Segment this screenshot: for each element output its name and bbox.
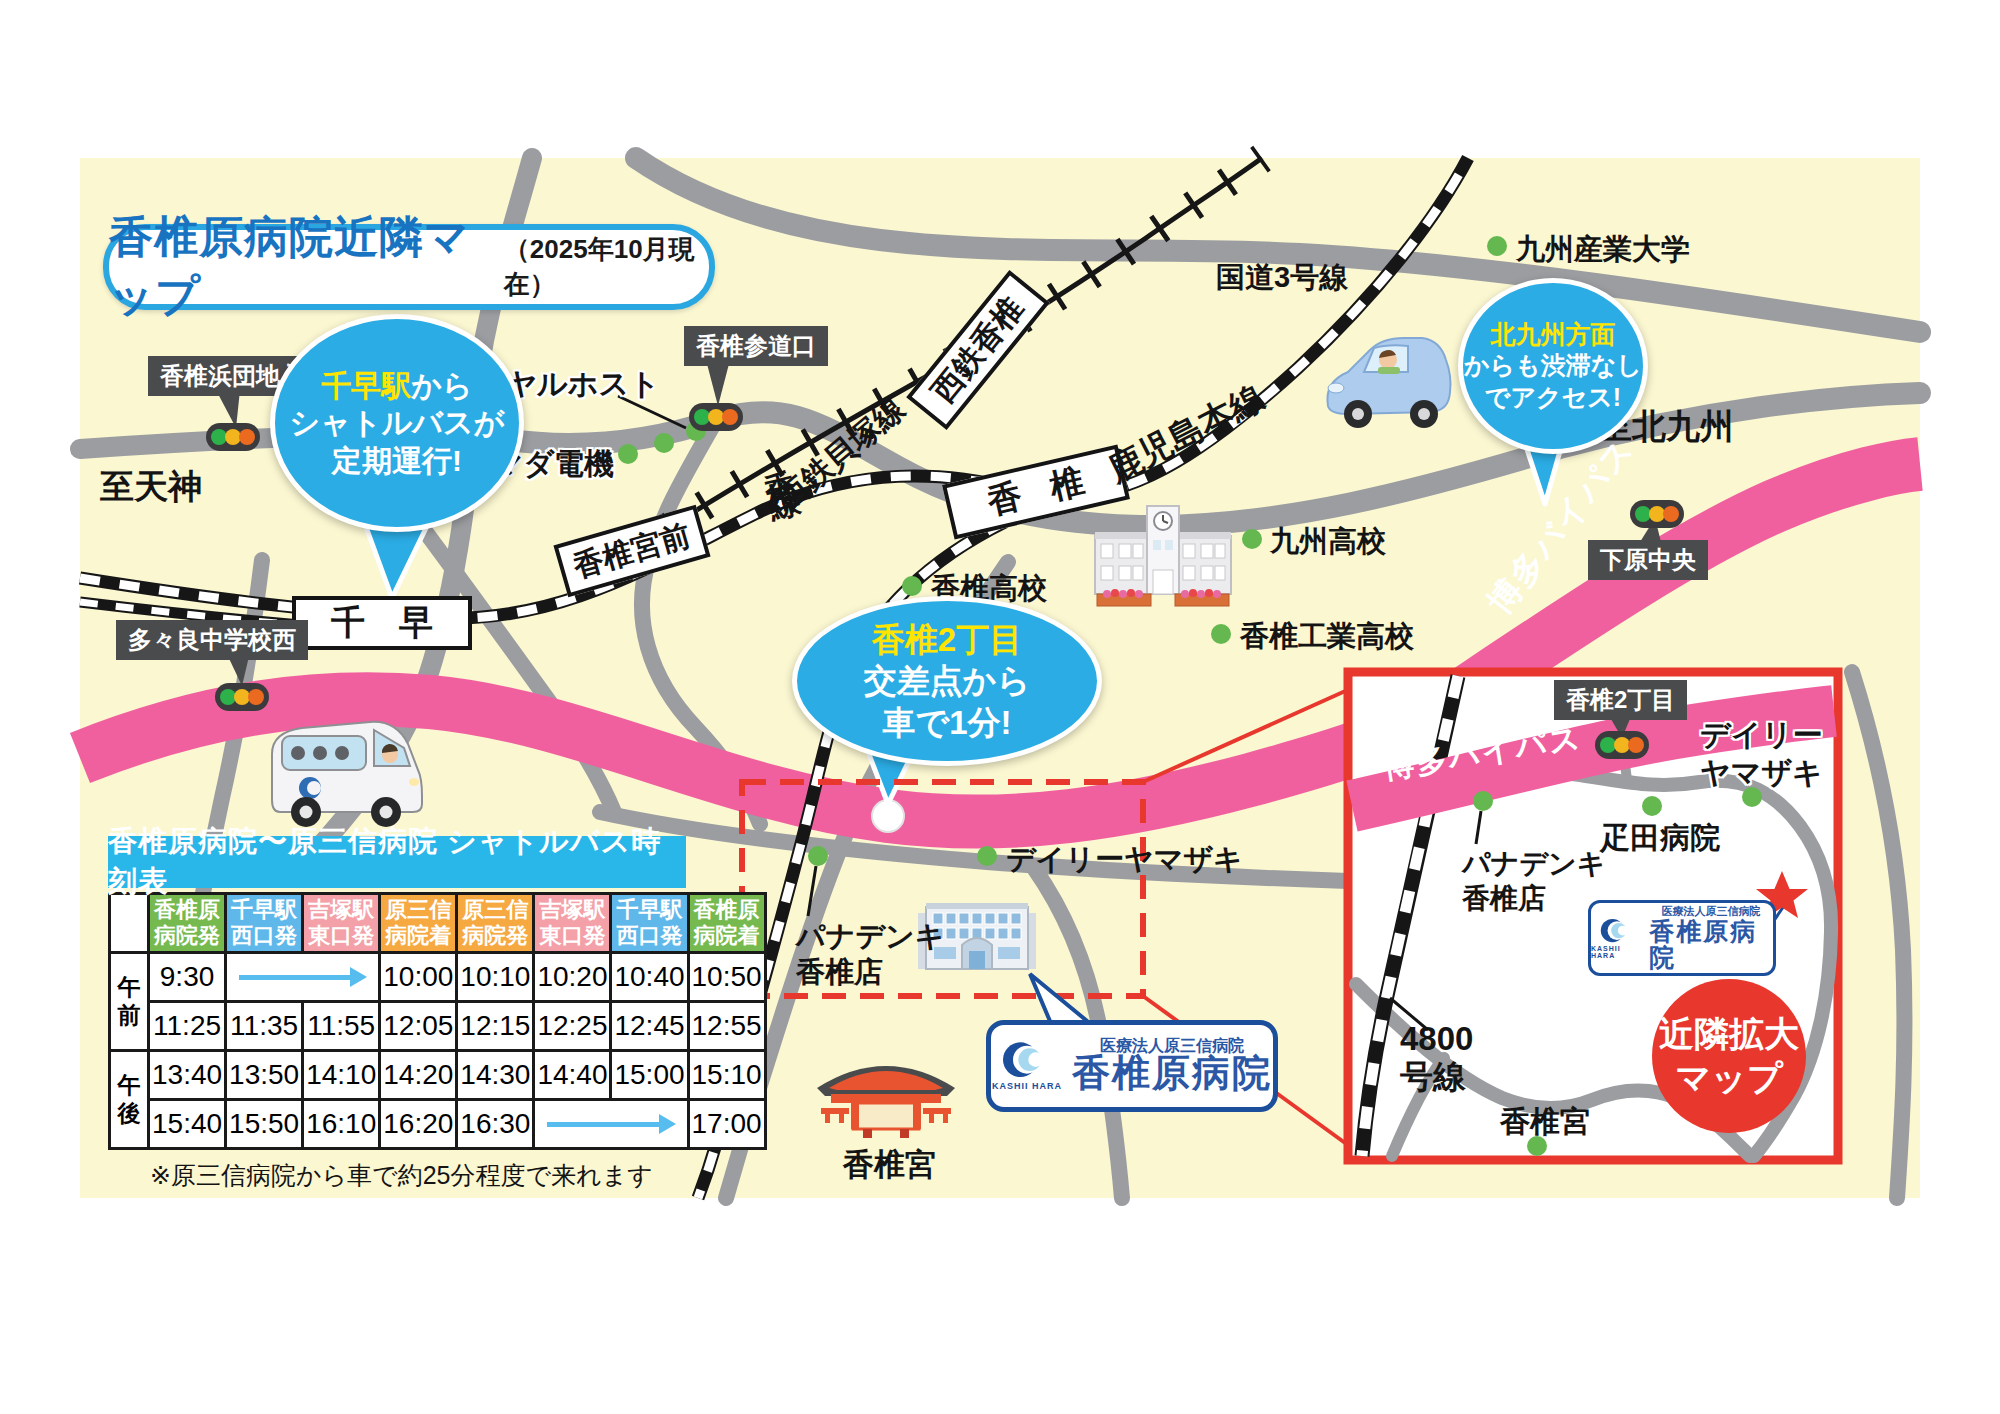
poi-hikita: 疋田病院 [1600,818,1720,859]
timetable-column-header: 千早駅 西口発 [611,894,688,953]
balloon-kitakyushu: 北九州方面 からも渋滞なし でアクセス! [1458,278,1648,454]
poi-sangyo-univ: 九州産業大学 [1516,230,1690,270]
shuttle-bus-icon [272,722,422,827]
timetable-time-cell: 15:10 [688,1051,765,1100]
timetable-time-cell: 12:15 [457,1002,534,1051]
hospital-logo: KASHII HARA [1591,918,1643,959]
sign-kashii2-inset: 香椎2丁目 [1554,680,1687,720]
timetable-table: 香椎原 病院発千早駅 西口発吉塚駅 東口発原三信 病院着原三信 病院発吉塚駅 東… [108,892,767,1150]
traffic-light-icon [689,403,743,431]
hospital-logo: KASHII HARA [992,1041,1062,1091]
balloon-chihaya-hl: 千早駅 [321,369,411,402]
map-poster: 香椎原病院近隣マップ （2025年10月現在） 香椎浜団地入口 香椎参道口 多々… [0,0,2000,1414]
timetable-column-header: 原三信 病院着 [380,894,457,953]
timetable-time-cell: 15:40 [149,1100,226,1149]
traffic-light-icon [215,683,269,711]
timetable-time-cell: 13:50 [226,1051,303,1100]
timetable-time-cell: 10:40 [611,953,688,1002]
timetable-period-label: 午 前 [110,953,149,1051]
timetable-through-arrow [226,953,380,1002]
label-kokudo3: 国道3号線 [1216,258,1348,298]
hospital-badge-inset: KASHII HARA 医療法人原三信病院 香椎原病院 [1588,900,1776,976]
hospital-name: 香椎原病院 [1072,1054,1272,1094]
map-title: 香椎原病院近隣マップ （2025年10月現在） [103,224,715,310]
shuttle-timetable: 香椎原病院〜原三信病院 シャトルバス時刻表 香椎原 病院発千早駅 西口発吉塚駅 … [108,836,767,1192]
timetable-column-header: 原三信 病院発 [457,894,534,953]
timetable-time-cell: 12:45 [611,1002,688,1051]
poi-panadenki-main: パナデンキ 香椎店 [796,918,944,991]
balloon-chihaya-l3: 定期運行! [332,442,462,480]
poi-kogyo-hs: 香椎工業高校 [1240,617,1414,657]
label-to-tenjin: 至天神 [100,464,202,510]
balloon-kitakyushu-hl: 北九州方面 [1491,319,1616,350]
timetable-time-cell: 14:10 [303,1051,380,1100]
timetable-column-header: 千早駅 西口発 [226,894,303,953]
traffic-light-icon [206,423,260,451]
timetable-time-cell: 15:00 [611,1051,688,1100]
timetable-time-cell: 12:05 [380,1002,457,1051]
sign-shimohara: 下原中央 [1588,540,1708,580]
balloon-kitakyushu-l2: からも渋滞なし [1464,350,1642,381]
hospital-org-name: 医療法人原三信病院 [1662,906,1761,918]
balloon-chihaya-shuttle: 千早駅から シャトルバスが 定期運行! [270,314,524,532]
hospital-logo-icon [1000,1041,1054,1081]
timetable-column-header: 香椎原 病院発 [149,894,226,953]
sign-sandoguchi: 香椎参道口 [684,326,828,366]
timetable-time-cell: 13:40 [149,1051,226,1100]
timetable-time-cell: 15:50 [226,1100,303,1149]
balloon-kashii2-l3: 車で1分! [882,702,1011,743]
timetable-time-cell: 9:30 [149,953,226,1002]
balloon-kashii2-hl: 香椎2丁目 [872,619,1022,660]
traffic-light-icon [1595,731,1649,759]
timetable-note: ※原三信病院から車で約25分程度で来れます [108,1159,767,1192]
inset-zoom-title: 近隣拡大 マップ [1652,979,1806,1133]
hospital-logo-text: KASHII HARA [1591,945,1643,959]
poi-kashiigu-main: 香椎宮 [843,1144,936,1186]
timetable-corner-cell [110,894,149,953]
timetable-time-cell: 14:40 [534,1051,611,1100]
balloon-kashii2-l2: 交差点から [864,660,1031,701]
timetable-period-label: 午 後 [110,1051,149,1149]
poi-kyushu-hs: 九州高校 [1270,522,1386,562]
timetable-time-cell: 16:20 [380,1100,457,1149]
hospital-name: 香椎原病院 [1649,918,1773,971]
timetable-time-cell: 14:30 [457,1051,534,1100]
map-title-text: 香椎原病院近隣マップ [109,208,492,326]
timetable-time-cell: 17:00 [688,1100,765,1149]
balloon-kitakyushu-l3: でアクセス! [1485,382,1621,413]
timetable-column-header: 香椎原 病院着 [688,894,765,953]
poi-daily-main: デイリーヤマザキ [1006,840,1243,880]
timetable-time-cell: 10:20 [534,953,611,1002]
timetable-time-cell: 11:25 [149,1002,226,1051]
sign-tatara: 多々良中学校西 [116,620,308,660]
balloon-chihaya-l2: シャトルバスが [290,404,505,442]
balloon-kashii2: 香椎2丁目 交差点から 車で1分! [792,596,1102,766]
timetable-through-arrow [534,1100,688,1149]
map-title-date: （2025年10月現在） [504,232,709,302]
traffic-light-icon [1630,500,1684,528]
timetable-column-header: 吉塚駅 東口発 [534,894,611,953]
timetable-time-cell: 11:55 [303,1002,380,1051]
timetable-time-cell: 14:20 [380,1051,457,1100]
station-chihaya: 千早 [292,596,472,650]
timetable-time-cell: 16:30 [457,1100,534,1149]
balloon-chihaya-l1: から [411,369,472,402]
timetable-time-cell: 16:10 [303,1100,380,1149]
timetable-time-cell: 12:25 [534,1002,611,1051]
poi-panadenki-inset: パナデンキ 香椎店 [1462,846,1605,916]
hospital-badge-main: KASHII HARA 医療法人原三信病院 香椎原病院 [986,1020,1278,1112]
label-4800: 4800 号線 [1400,1020,1473,1096]
timetable-time-cell: 12:55 [688,1002,765,1051]
poi-kashiigu-inset: 香椎宮 [1500,1102,1590,1143]
hospital-logo-text: KASHII HARA [992,1081,1062,1091]
timetable-time-cell: 11:35 [226,1002,303,1051]
timetable-title: 香椎原病院〜原三信病院 シャトルバス時刻表 [108,836,686,888]
timetable-time-cell: 10:00 [380,953,457,1002]
hospital-logo-icon [1599,918,1635,945]
poi-daily-inset: デイリー ヤマザキ [1700,716,1823,791]
timetable-time-cell: 10:50 [688,953,765,1002]
timetable-column-header: 吉塚駅 東口発 [303,894,380,953]
timetable-time-cell: 10:10 [457,953,534,1002]
